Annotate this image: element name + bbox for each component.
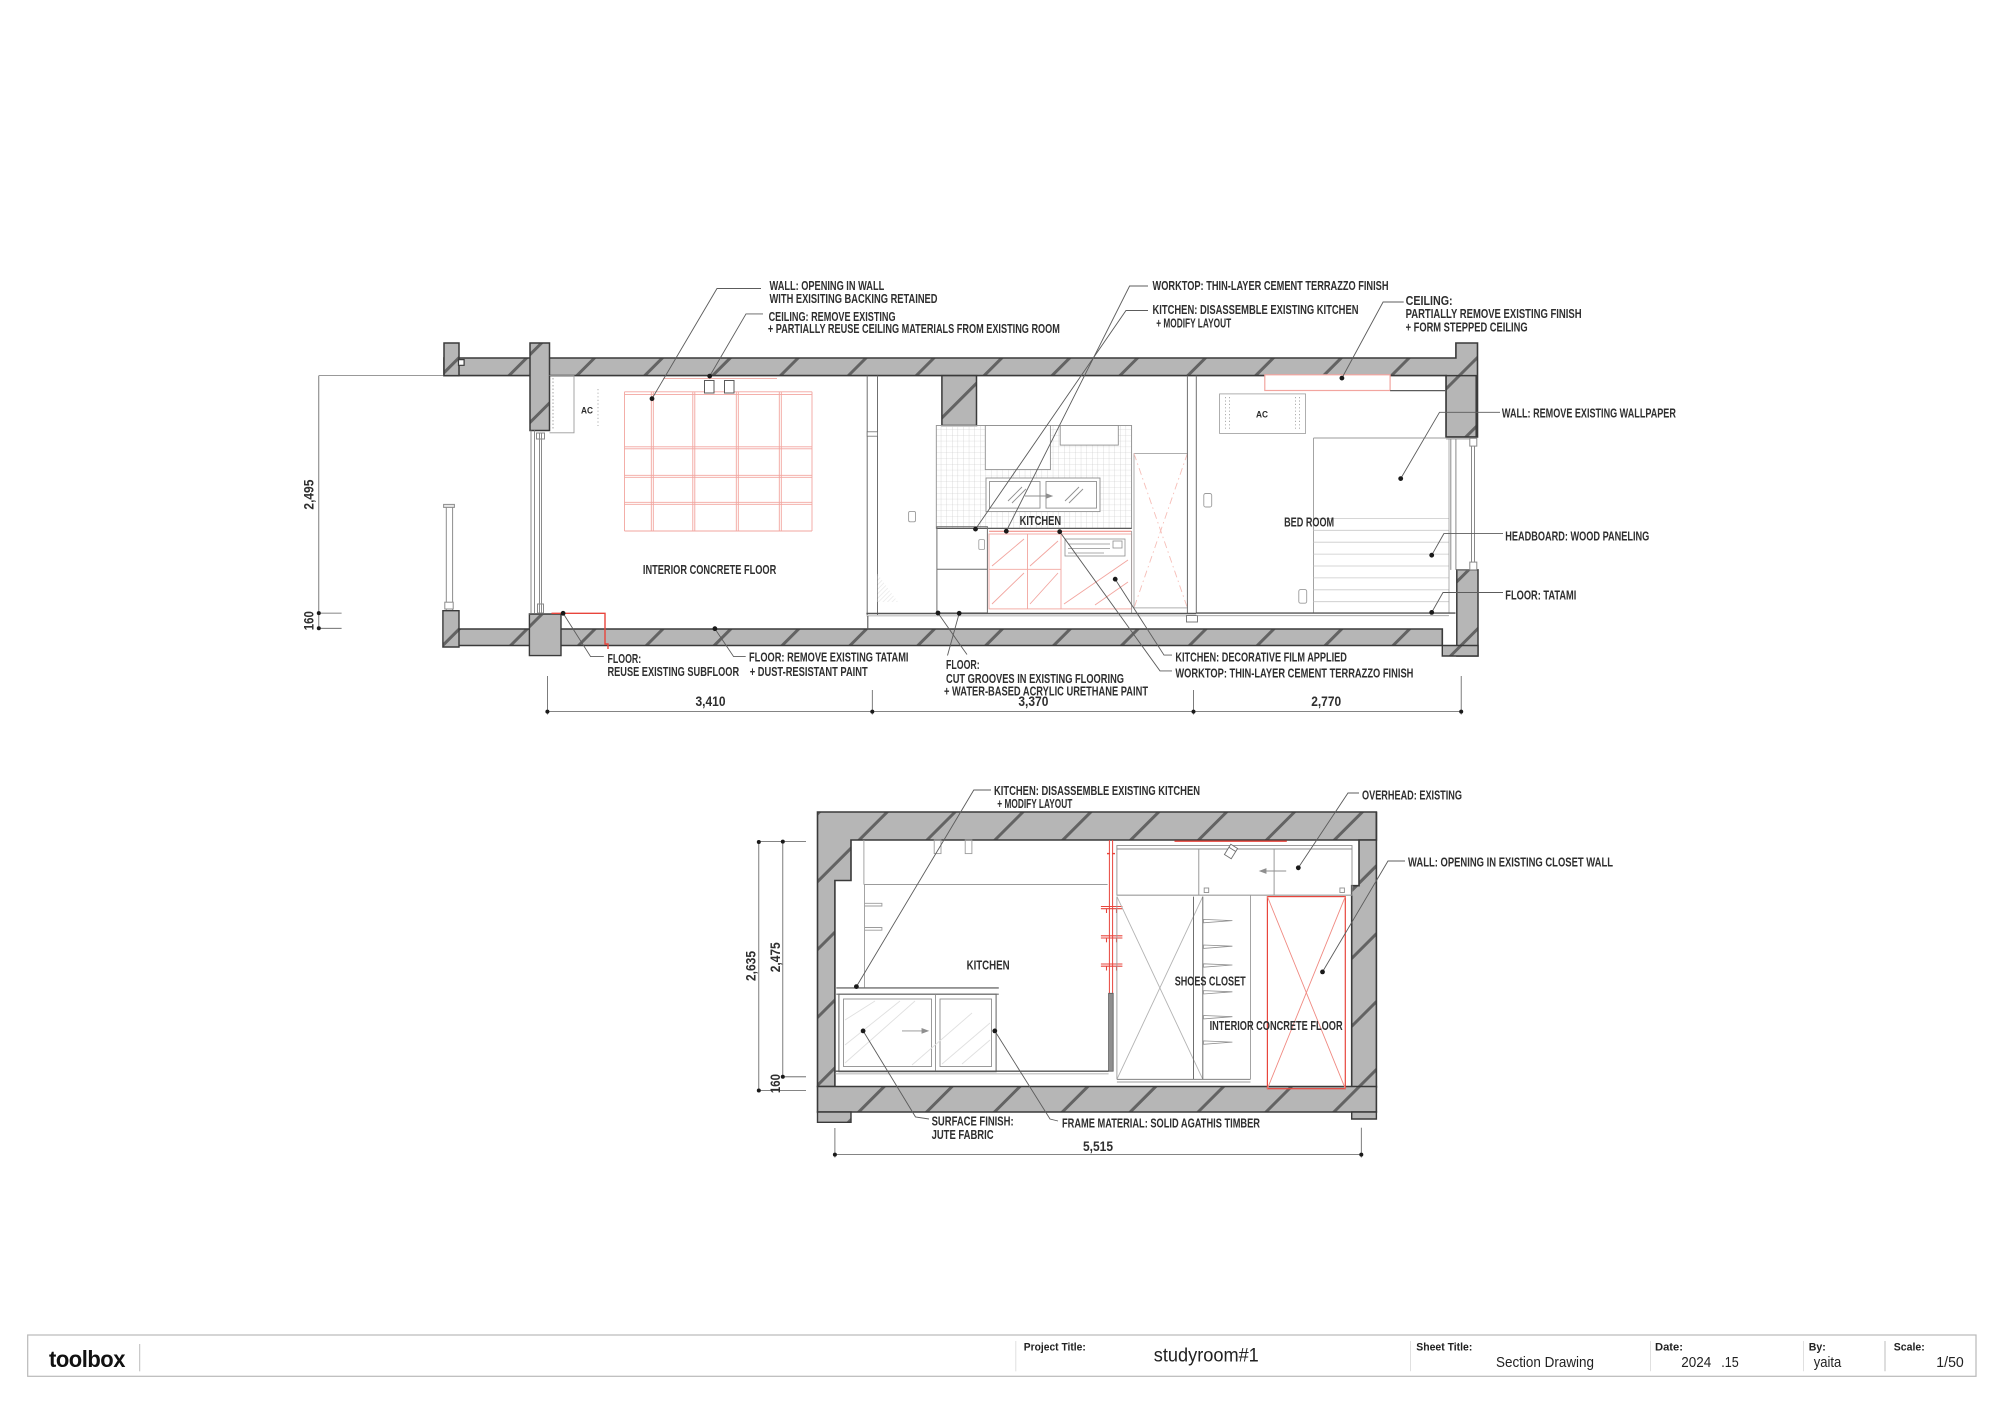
svg-text:Section Drawing: Section Drawing xyxy=(1496,1355,1594,1371)
svg-text:+ FORM STEPPED CEILING: + FORM STEPPED CEILING xyxy=(1406,319,1528,334)
svg-text:2,770: 2,770 xyxy=(1311,693,1341,709)
svg-text:3,370: 3,370 xyxy=(1018,693,1048,709)
svg-text:studyroom#1: studyroom#1 xyxy=(1154,1346,1259,1367)
svg-text:By:: By: xyxy=(1809,1342,1826,1354)
svg-text:SHOES CLOSET: SHOES CLOSET xyxy=(1175,973,1246,988)
svg-text:+ PARTIALLY REUSE CEILING MATE: + PARTIALLY REUSE CEILING MATERIALS FROM… xyxy=(768,321,1060,336)
svg-text:1/50: 1/50 xyxy=(1936,1355,1964,1371)
svg-text:.15: .15 xyxy=(1721,1355,1739,1371)
svg-text:REUSE EXISTING SUBFLOOR: REUSE EXISTING SUBFLOOR xyxy=(608,664,740,679)
svg-text:5,515: 5,515 xyxy=(1083,1138,1113,1154)
svg-text:BED ROOM: BED ROOM xyxy=(1284,514,1334,529)
svg-text:OVERHEAD: EXISTING: OVERHEAD: EXISTING xyxy=(1362,788,1462,803)
svg-text:+ DUST-RESISTANT PAINT: + DUST-RESISTANT PAINT xyxy=(750,664,868,679)
svg-text:2,635: 2,635 xyxy=(742,951,758,981)
svg-text:WORKTOP: THIN-LAYER CEMENT TER: WORKTOP: THIN-LAYER CEMENT TERRAZZO FINI… xyxy=(1175,666,1413,681)
svg-text:KITCHEN: KITCHEN xyxy=(1020,513,1062,528)
svg-text:INTERIOR CONCRETE FLOOR: INTERIOR CONCRETE FLOOR xyxy=(1210,1018,1343,1033)
svg-text:Sheet Title:: Sheet Title: xyxy=(1416,1342,1472,1354)
svg-text:160: 160 xyxy=(767,1074,783,1093)
svg-text:+ MODIFY LAYOUT: + MODIFY LAYOUT xyxy=(1156,316,1231,331)
svg-text:FLOOR: REMOVE EXISTING TATAMI: FLOOR: REMOVE EXISTING TATAMI xyxy=(749,650,909,665)
svg-text:2,495: 2,495 xyxy=(301,479,317,509)
svg-text:Date:: Date: xyxy=(1655,1342,1683,1354)
svg-text:WALL: OPENING IN EXISTING CLOS: WALL: OPENING IN EXISTING CLOSET WALL xyxy=(1408,855,1613,870)
svg-text:toolbox: toolbox xyxy=(49,1346,126,1372)
svg-text:WITH EXISITING BACKING RETAINE: WITH EXISITING BACKING RETAINED xyxy=(770,291,938,306)
svg-text:FLOOR: TATAMI: FLOOR: TATAMI xyxy=(1505,587,1576,602)
svg-text:Project Title:: Project Title: xyxy=(1024,1342,1086,1354)
svg-text:FRAME MATERIAL: SOLID AGATHIS: FRAME MATERIAL: SOLID AGATHIS TIMBER xyxy=(1062,1116,1260,1131)
svg-text:WORKTOP: THIN-LAYER CEMENT TER: WORKTOP: THIN-LAYER CEMENT TERRAZZO FINI… xyxy=(1153,278,1389,293)
svg-text:KITCHEN: KITCHEN xyxy=(967,957,1010,972)
svg-text:INTERIOR CONCRETE FLOOR: INTERIOR CONCRETE FLOOR xyxy=(643,562,777,577)
svg-text:yaita: yaita xyxy=(1814,1355,1842,1371)
svg-text:WALL: REMOVE EXISTING WALLPAPE: WALL: REMOVE EXISTING WALLPAPER xyxy=(1502,406,1676,421)
svg-text:KITCHEN: DECORATIVE FILM APPLI: KITCHEN: DECORATIVE FILM APPLIED xyxy=(1175,650,1347,665)
svg-text:FLOOR:: FLOOR: xyxy=(946,657,980,672)
svg-text:3,410: 3,410 xyxy=(696,693,726,709)
svg-text:AC: AC xyxy=(1256,410,1268,420)
svg-text:JUTE FABRIC: JUTE FABRIC xyxy=(932,1127,994,1142)
svg-text:+ MODIFY LAYOUT: + MODIFY LAYOUT xyxy=(997,796,1072,811)
svg-text:160: 160 xyxy=(301,611,317,630)
svg-text:HEADBOARD: WOOD PANELING: HEADBOARD: WOOD PANELING xyxy=(1505,529,1649,544)
svg-text:AC: AC xyxy=(581,406,593,416)
svg-text:2024: 2024 xyxy=(1681,1355,1711,1371)
svg-text:Scale:: Scale: xyxy=(1894,1342,1925,1354)
svg-text:2,475: 2,475 xyxy=(767,942,783,972)
